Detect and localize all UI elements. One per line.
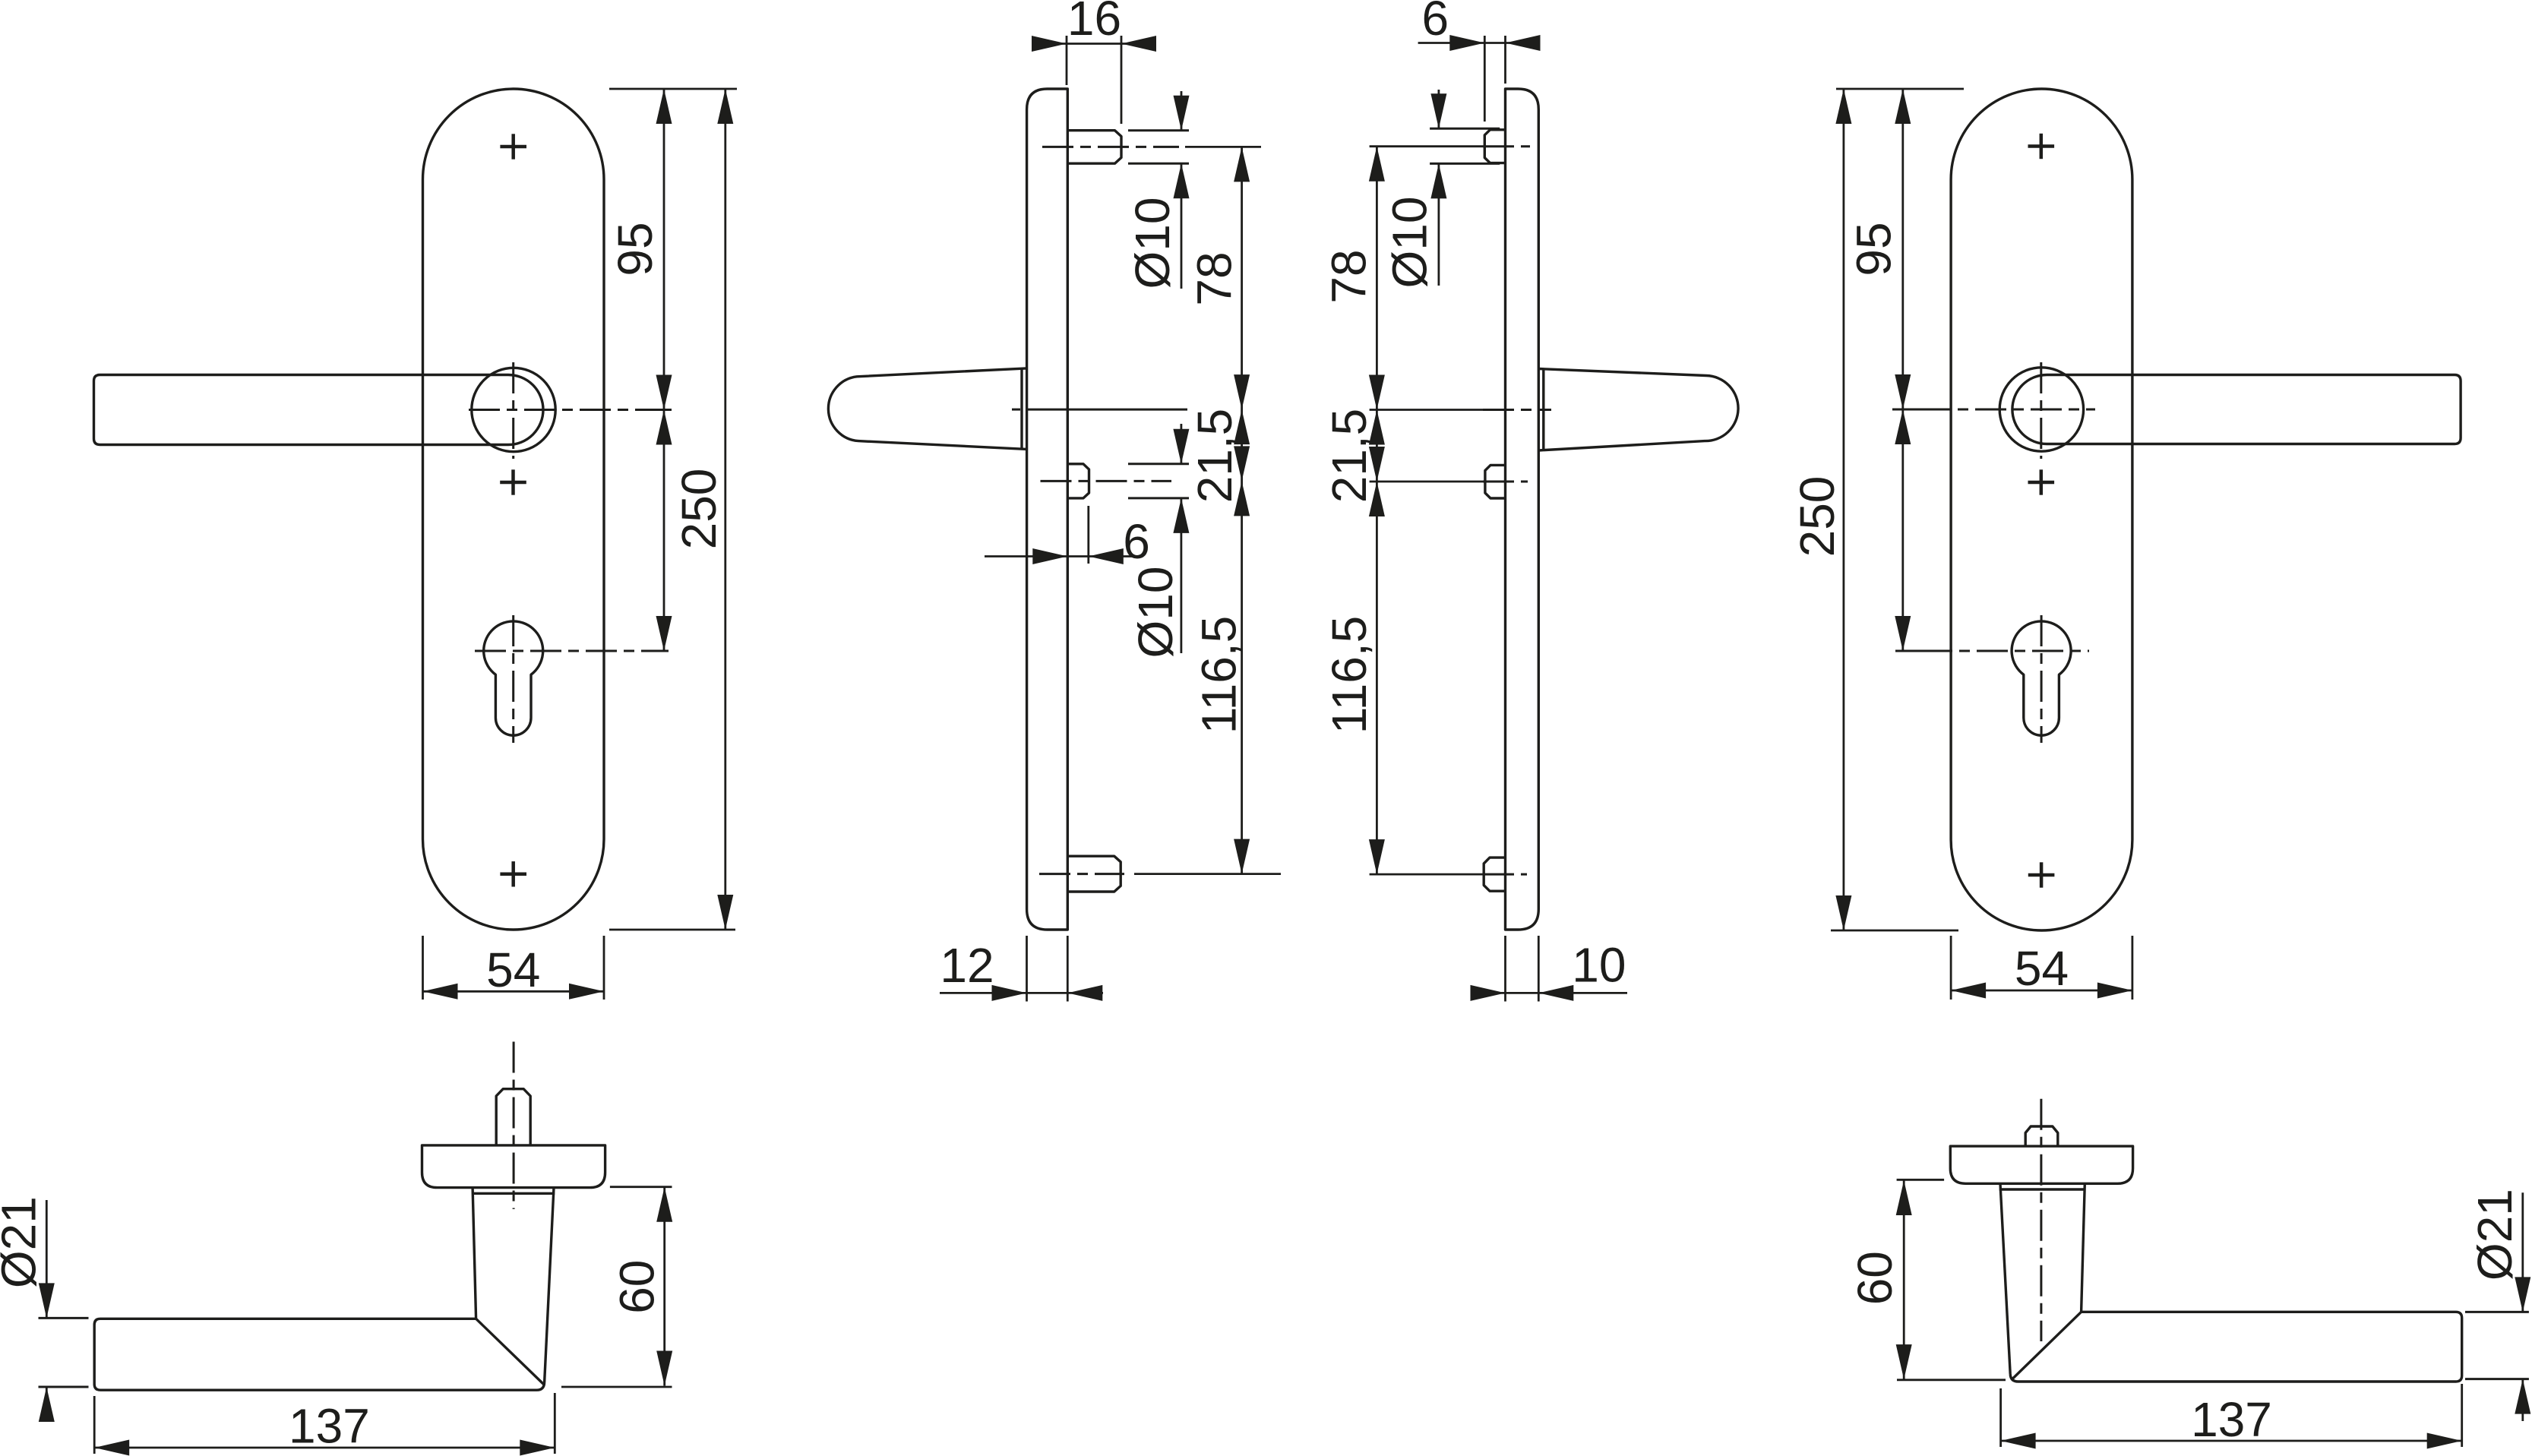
svg-text:78: 78 bbox=[1187, 251, 1242, 305]
svg-text:12: 12 bbox=[940, 938, 994, 993]
svg-text:21,5: 21,5 bbox=[1322, 409, 1377, 504]
svg-text:60: 60 bbox=[1848, 1251, 1902, 1305]
svg-text:116,5: 116,5 bbox=[1322, 616, 1377, 734]
svg-text:78: 78 bbox=[1321, 249, 1376, 303]
svg-text:54: 54 bbox=[486, 943, 540, 997]
svg-text:Ø10: Ø10 bbox=[1128, 567, 1183, 659]
svg-text:137: 137 bbox=[2191, 1392, 2272, 1447]
svg-text:Ø10: Ø10 bbox=[1383, 197, 1437, 289]
svg-text:54: 54 bbox=[2015, 941, 2069, 996]
svg-text:16: 16 bbox=[1067, 0, 1121, 46]
svg-text:250: 250 bbox=[1790, 476, 1844, 557]
svg-text:95: 95 bbox=[1847, 222, 1901, 276]
svg-text:137: 137 bbox=[289, 1399, 370, 1454]
svg-text:60: 60 bbox=[609, 1260, 664, 1314]
svg-text:6: 6 bbox=[1422, 0, 1449, 46]
svg-text:95: 95 bbox=[608, 222, 662, 276]
svg-text:Ø21: Ø21 bbox=[2467, 1189, 2522, 1281]
svg-text:10: 10 bbox=[1572, 938, 1626, 993]
svg-text:Ø21: Ø21 bbox=[0, 1196, 46, 1288]
svg-text:Ø10: Ø10 bbox=[1125, 197, 1180, 289]
svg-text:6: 6 bbox=[1123, 514, 1150, 569]
svg-text:116,5: 116,5 bbox=[1192, 616, 1247, 734]
svg-text:21,5: 21,5 bbox=[1187, 409, 1242, 504]
svg-text:250: 250 bbox=[672, 469, 726, 550]
